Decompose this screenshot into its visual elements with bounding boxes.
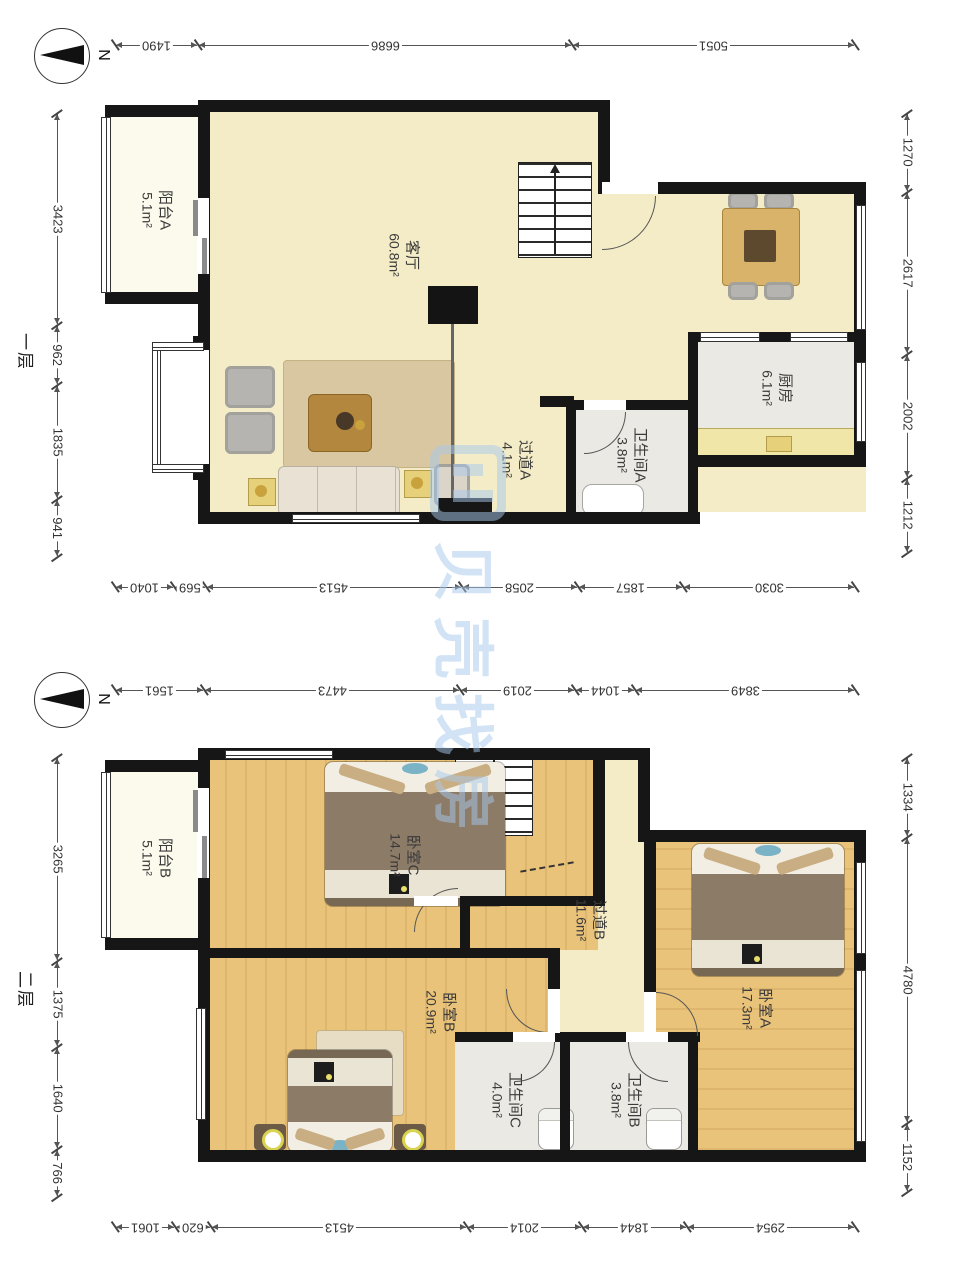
dims-floor2-left: 326513751640766 [49, 757, 65, 1197]
dim-segment: 1844 [582, 1219, 687, 1235]
lamp-icon [262, 1129, 284, 1151]
structural-column [428, 286, 478, 324]
cutting-board [766, 436, 792, 452]
dim-segment: 1270 [899, 113, 915, 192]
wall [198, 1150, 866, 1162]
room-label-living: 客厅60.8m² [387, 233, 424, 277]
dims-floor1-bottom: 10405694513205818573030 [115, 579, 855, 595]
nightstand [394, 1124, 426, 1150]
dim-segment: 1835 [49, 385, 65, 499]
sofa [278, 466, 400, 516]
dim-segment: 4780 [899, 837, 915, 1123]
wall [593, 748, 605, 906]
stair-stringer [554, 166, 556, 254]
kitchen-window [856, 362, 866, 442]
wall [198, 512, 700, 524]
dim-segment: 1334 [899, 757, 915, 837]
sliding-door [202, 238, 207, 274]
room-label-bedroom-c: 卧室C14.7m² [388, 833, 425, 877]
stair-up-arrow-icon [550, 164, 560, 173]
bedroom-b-floor [205, 958, 548, 1036]
bedroom-b-opening [548, 989, 560, 1033]
bay-window [152, 348, 161, 466]
room-label-kitchen: 厨房6.1m² [760, 370, 797, 406]
dims-floor1-top: 149066865051 [115, 37, 855, 53]
dim-segment: 4513 [206, 579, 462, 595]
room-label-bedroom-b: 卧室B20.9m² [424, 990, 461, 1034]
armchair [225, 412, 275, 454]
bay-window [152, 464, 204, 473]
nightstand [254, 1124, 286, 1150]
room-label-balcony-a: 阳台A5.1m² [140, 190, 177, 230]
bedroom-a-opening [644, 992, 656, 1036]
wall [566, 400, 576, 512]
room-label-hallway-a: 过道A4.1m² [500, 440, 537, 480]
floor2-label: 二层 [15, 971, 40, 1009]
table-decor [336, 412, 354, 430]
wall [638, 748, 650, 842]
dim-segment: 2617 [899, 192, 915, 354]
bed-bedroom-a [692, 844, 844, 976]
room-label-bathroom-c: 卫生间C4.0m² [490, 1072, 527, 1128]
bathroom-b-opening [626, 1032, 668, 1042]
dim-segment: 1040 [115, 579, 174, 595]
dim-segment: 620 [175, 1219, 210, 1235]
bedroom-a-window [856, 970, 866, 1142]
lamp-icon [402, 1129, 424, 1151]
dims-floor2-right: 133447801152 [899, 757, 915, 1192]
dining-window [856, 205, 866, 330]
dims-floor1-left: 34239621835941 [49, 113, 65, 557]
sliding-door [202, 836, 207, 878]
kitchen-window [790, 332, 848, 342]
bedroom-c-window [225, 750, 333, 759]
bay-window [152, 342, 204, 351]
armchair [225, 366, 275, 408]
room-label-bedroom-a: 卧室A17.3m² [740, 986, 777, 1030]
dim-segment: 962 [49, 325, 65, 385]
room-label-balcony-b: 阳台B5.1m² [140, 838, 177, 878]
table-decor [355, 420, 365, 430]
floorplan-canvas: 客厅60.8m² 厨房6.1m² 卫生间A3.8m² 过道A4.1m² 阳台A5… [0, 0, 960, 1280]
north-arrow-icon [40, 45, 84, 65]
wall [560, 1032, 570, 1152]
side-table-decor [255, 485, 267, 497]
dim-segment: 1044 [575, 682, 635, 698]
bathroom-a-opening [584, 400, 626, 410]
north-label: N [97, 693, 115, 705]
dim-segment: 1212 [899, 478, 915, 553]
toilet [646, 1108, 682, 1150]
kitchen-window [700, 332, 760, 342]
dims-floor2-bottom: 10616204513201418442954 [115, 1219, 855, 1235]
bedroom-b-window [196, 1008, 206, 1120]
wall [638, 830, 866, 842]
room-label-hallway-b: 过道B11.6m² [574, 899, 611, 942]
balcony-wall [105, 292, 200, 304]
bathroom-c-opening [513, 1032, 555, 1042]
north-arrow-icon [40, 689, 84, 709]
dim-segment: 1061 [115, 1219, 175, 1235]
bed-bedroom-b [288, 1050, 392, 1152]
dim-segment: 4473 [204, 682, 460, 698]
dim-segment: 2019 [460, 682, 575, 698]
balcony-wall [105, 938, 200, 950]
dim-segment: 2058 [462, 579, 579, 595]
north-label: N [97, 49, 115, 61]
floor1-label: 一层 [15, 333, 40, 371]
dim-segment: 2014 [467, 1219, 582, 1235]
bedroom-a-window [856, 862, 866, 954]
wall [598, 100, 610, 194]
balcony-wall [105, 760, 200, 772]
wall [644, 842, 656, 994]
dim-segment: 1640 [49, 1047, 65, 1149]
bedroom-c-opening [414, 896, 458, 906]
entry-opening [602, 182, 658, 194]
room-label-bathroom-b: 卫生间B3.8m² [609, 1072, 646, 1127]
dim-segment: 3849 [635, 682, 855, 698]
side-table-decor [411, 477, 423, 489]
balcony-window [101, 772, 111, 938]
wall [688, 1032, 698, 1152]
glass-partition [451, 324, 454, 498]
dim-segment: 766 [49, 1149, 65, 1197]
dims-floor2-top: 15614473201910443849 [115, 682, 855, 698]
dining-table-mat [744, 230, 776, 262]
dim-segment: 941 [49, 499, 65, 557]
sliding-door [193, 200, 198, 236]
dim-segment: 1152 [899, 1123, 915, 1192]
staircase [518, 162, 592, 258]
dining-chair [728, 282, 758, 300]
balcony-window [101, 117, 111, 293]
dim-segment: 3423 [49, 113, 65, 325]
living-window [292, 514, 420, 523]
dim-segment: 2002 [899, 354, 915, 478]
dim-segment: 1375 [49, 961, 65, 1047]
dim-segment: 4513 [211, 1219, 468, 1235]
sliding-door [193, 790, 198, 832]
wall [688, 455, 866, 467]
wall [198, 100, 610, 112]
dim-segment: 3030 [683, 579, 855, 595]
dim-segment: 5051 [572, 37, 855, 53]
bay-opening [197, 350, 209, 464]
wall [198, 948, 560, 958]
balcony-wall [105, 105, 200, 117]
dim-segment: 2954 [687, 1219, 855, 1235]
dim-segment: 6686 [198, 37, 572, 53]
compass-floor2: N [34, 672, 144, 732]
dim-segment: 1857 [578, 579, 683, 595]
dining-chair [764, 282, 794, 300]
dim-segment: 569 [174, 579, 206, 595]
wall [688, 332, 698, 512]
compass-floor1: N [34, 28, 144, 88]
room-label-bathroom-a: 卫生间A3.8m² [615, 427, 652, 482]
dims-floor1-right: 1270261720021212 [899, 113, 915, 553]
dim-segment: 3265 [49, 757, 65, 961]
